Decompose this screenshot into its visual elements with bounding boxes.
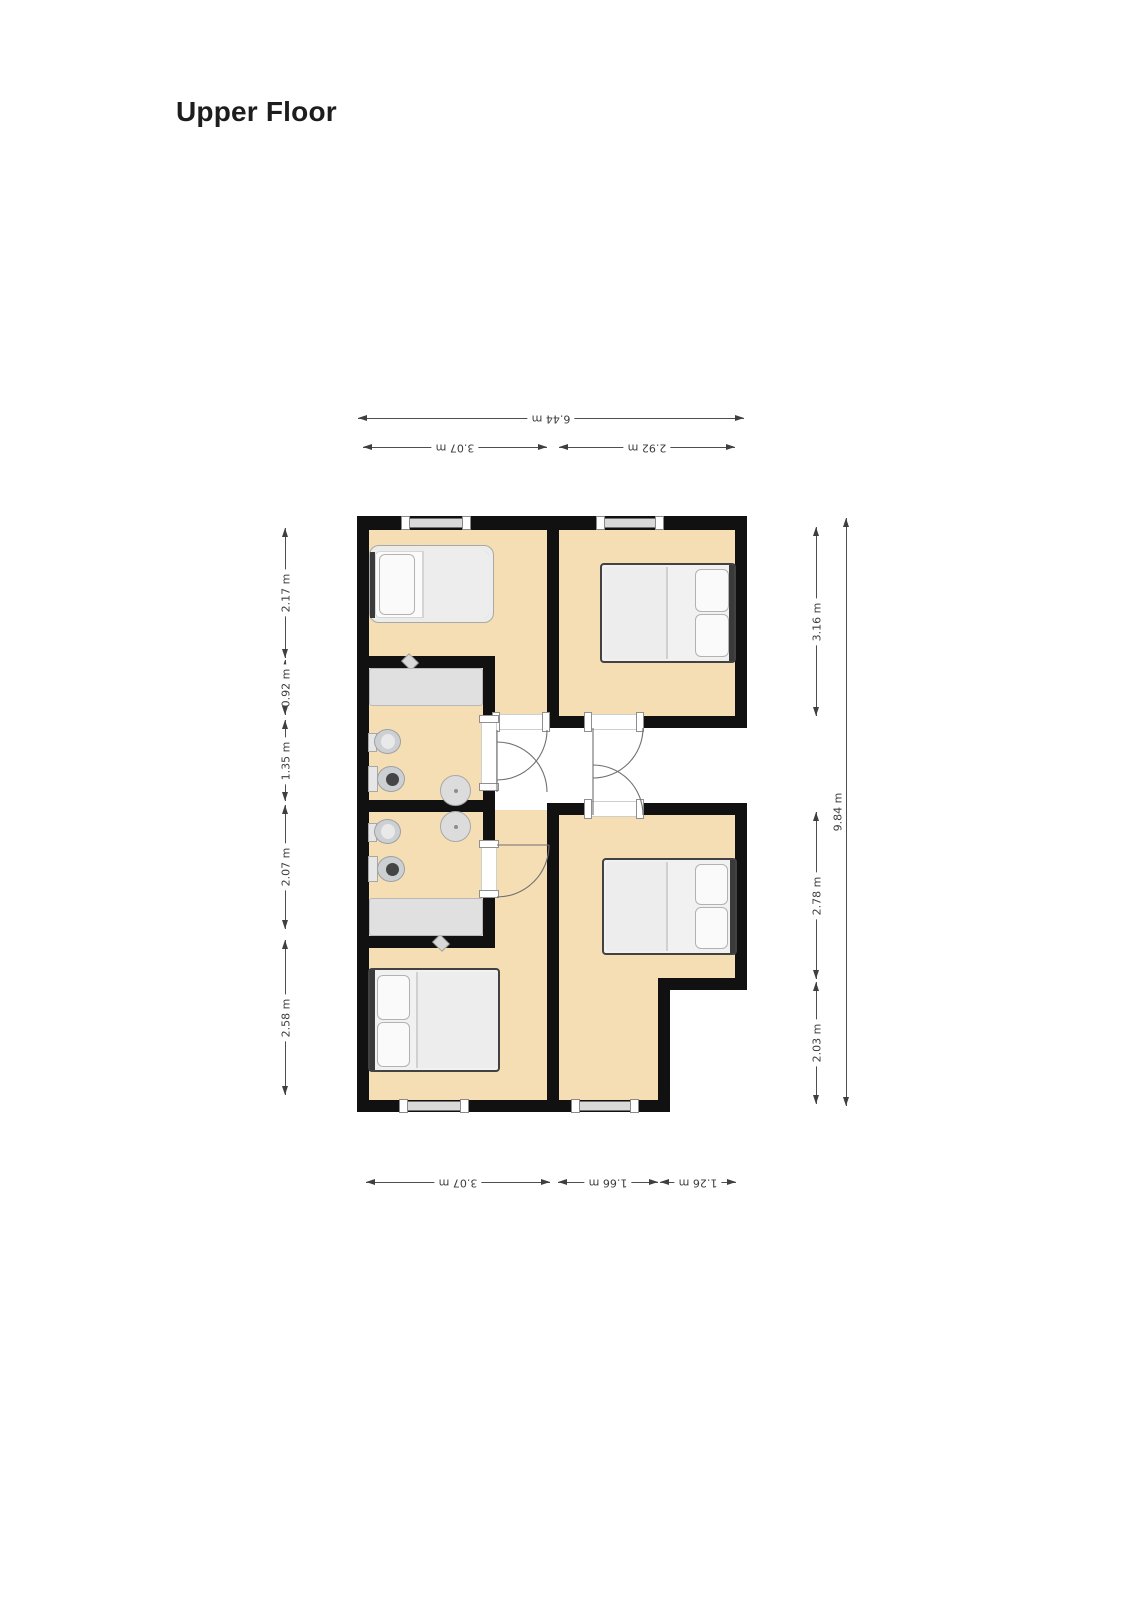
- wall-between-bottom-bedrooms: [547, 803, 559, 1112]
- window-bedroom-top-left: [402, 518, 470, 528]
- window-bedroom-bottom-left: [400, 1101, 468, 1111]
- dimension-left-4: 2.07 m: [285, 805, 286, 929]
- double-bed-icon-top-right: [600, 563, 736, 663]
- door-opening-bathroom-upper: [481, 716, 497, 790]
- dimension-label: 2.17 m: [280, 570, 293, 617]
- dimension-label: 2.07 m: [280, 844, 293, 891]
- door-opening-bathroom-lower: [481, 841, 497, 897]
- dimension-label: 3.07 m: [432, 442, 479, 455]
- bidet-basin: [381, 734, 395, 749]
- floor-landing: [495, 728, 747, 803]
- dimension-left-5: 2.58 m: [285, 940, 286, 1095]
- bed-pillow: [377, 975, 410, 1020]
- wall-landing-bottom-right-seg: [643, 803, 747, 815]
- dimension-left-1: 2.17 m: [285, 528, 286, 658]
- dimension-left-2: 0.92 m: [285, 660, 286, 715]
- wall-bathroom-right-a: [483, 656, 495, 716]
- counter-icon-upper: [369, 668, 483, 706]
- double-bed-icon-bottom-left: [368, 968, 500, 1072]
- dimension-right-3: 2.03 m: [816, 982, 817, 1104]
- wall-right-upper: [735, 516, 747, 728]
- toilet-bowl: [386, 773, 399, 786]
- bed-headboard: [729, 565, 734, 661]
- bed-pillow: [379, 554, 415, 615]
- floorplan-page: Upper Floor: [0, 0, 1132, 1600]
- window-bedroom-bottom-right: [572, 1101, 638, 1111]
- single-bed-icon: [369, 545, 494, 623]
- bidet-basin: [381, 824, 395, 839]
- dimension-top-left-room: 3.07 m: [363, 447, 547, 448]
- floor-hall-strip-lower: [495, 810, 547, 948]
- dimension-label: 0.92 m: [280, 664, 293, 711]
- bed-blanket: [606, 862, 668, 951]
- wall-bathroom-lower-bottom: [357, 936, 495, 948]
- dimension-right-2: 2.78 m: [816, 812, 817, 979]
- wall-bathroom-right-b: [483, 790, 495, 841]
- toilet-bowl: [386, 863, 399, 876]
- bed-pillow: [695, 569, 729, 612]
- floor-bedroom-bottom-right-ext: [559, 978, 658, 1100]
- window-bedroom-top-right: [597, 518, 663, 528]
- wall-step-vertical: [658, 990, 670, 1112]
- dimension-label: 2.58 m: [280, 994, 293, 1041]
- wall-step-horizontal: [658, 978, 747, 990]
- bed-pillow: [377, 1022, 410, 1067]
- sink-icon-lower: [440, 811, 471, 842]
- counter-icon-lower: [369, 898, 483, 936]
- dimension-top-total: 6.44 m: [358, 418, 744, 419]
- dimension-label: 2.78 m: [811, 872, 824, 919]
- bed-pillow: [695, 614, 729, 657]
- bed-headboard: [730, 860, 735, 953]
- dimension-label: 3.07 m: [435, 1177, 482, 1190]
- double-bed-icon-bottom-right: [602, 858, 737, 955]
- wall-landing-top-right-seg: [643, 716, 747, 728]
- door-opening-landing-to-topright: [585, 714, 643, 730]
- dimension-label: 1.66 m: [585, 1177, 632, 1190]
- dimension-label: 9.84 m: [832, 789, 845, 836]
- dimension-left-3: 1.35 m: [285, 720, 286, 801]
- bed-pillow: [695, 864, 728, 905]
- dimension-label: 6.44 m: [528, 413, 575, 426]
- wall-between-top-bedrooms: [547, 516, 559, 728]
- dimension-label: 2.03 m: [811, 1020, 824, 1067]
- sink-icon-upper: [440, 775, 471, 806]
- bed-pillow: [695, 907, 728, 949]
- door-opening-landing-to-bottomright: [585, 801, 643, 817]
- wall-landing-top-left-seg: [559, 716, 585, 728]
- dimension-right-total: 9.84 m: [846, 518, 847, 1106]
- door-opening-landing-to-topleft: [493, 714, 549, 730]
- dimension-label: 1.35 m: [280, 737, 293, 784]
- floor-hall-strip-upper: [495, 656, 547, 714]
- dimension-label: 2.92 m: [624, 442, 671, 455]
- dimension-bottom-right: 1.26 m: [660, 1182, 736, 1183]
- bed-blanket: [422, 551, 489, 618]
- dimension-label: 1.26 m: [675, 1177, 722, 1190]
- dimension-right-1: 3.16 m: [816, 527, 817, 716]
- dimension-bottom-middle: 1.66 m: [558, 1182, 658, 1183]
- bed-blanket: [416, 972, 498, 1068]
- bed-blanket: [604, 567, 668, 659]
- dimension-label: 3.16 m: [811, 598, 824, 645]
- page-title: Upper Floor: [176, 96, 337, 128]
- dimension-top-right-room: 2.92 m: [559, 447, 735, 448]
- wall-below-bedroom-top-left: [357, 656, 495, 668]
- dimension-bottom-left-room: 3.07 m: [366, 1182, 550, 1183]
- bed-headboard: [370, 970, 375, 1070]
